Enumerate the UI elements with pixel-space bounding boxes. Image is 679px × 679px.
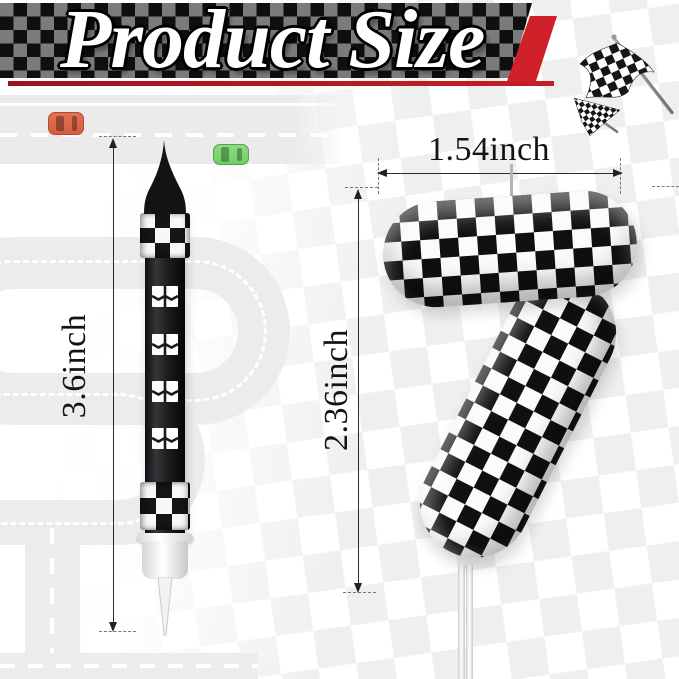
track-road-bottom (0, 653, 258, 679)
candle-holder-cup (142, 541, 188, 579)
chevron-stripe-icon (152, 428, 178, 449)
arrow-down-icon (109, 622, 117, 632)
dimension-tick (345, 187, 378, 188)
arrow-up-icon (354, 189, 362, 199)
crossed-checkered-flags-icon (568, 18, 679, 143)
candle-stick (466, 565, 473, 679)
car-window (72, 116, 77, 130)
dimension-tick (99, 631, 136, 632)
dimension-tick (99, 136, 136, 137)
numeral-height-label: 2.36inch (272, 325, 402, 455)
car-window (221, 147, 228, 161)
red-underline (8, 81, 554, 86)
red-race-car-icon (48, 112, 84, 135)
car-window (237, 148, 242, 161)
chevron-stripe-icon (152, 286, 178, 307)
candle-height-label: 3.6inch (20, 311, 130, 421)
page-title: Product Size (60, 0, 560, 88)
candle-stick (458, 565, 465, 679)
checkered-band-top (140, 213, 190, 258)
arrow-right-icon (613, 169, 623, 177)
checkered-band-bottom (140, 482, 190, 530)
arrow-left-icon (377, 169, 387, 177)
road-edge-line (0, 103, 350, 106)
candle-pick-spike (155, 577, 175, 637)
product-size-infographic: 3.6inch 1.54inch 2.36inch Product Size (0, 0, 679, 679)
arrow-up-icon (109, 138, 117, 148)
car-window (56, 116, 63, 132)
chevron-stripe-icon (152, 381, 178, 402)
width-dimension-line (381, 173, 619, 174)
numeral-width-label: 1.54inch (428, 131, 550, 169)
dimension-tick (652, 186, 679, 187)
chevron-stripe-icon (152, 334, 178, 355)
candle-tip (141, 140, 189, 214)
arrow-down-icon (354, 583, 362, 593)
road-dash (0, 664, 258, 668)
green-race-car-icon (213, 144, 249, 165)
number-7-candle-bar (380, 187, 641, 310)
